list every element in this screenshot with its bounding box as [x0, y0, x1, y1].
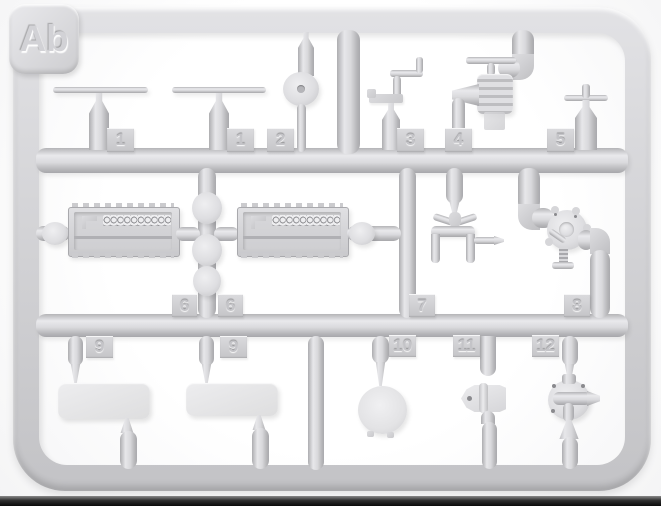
- part-12-bolt-2: [581, 384, 585, 388]
- part-7-post: [446, 168, 463, 204]
- tab-10-label: 10: [393, 336, 412, 356]
- part-9-left-top-post: [68, 336, 83, 366]
- tab-part-12: 12: [532, 335, 559, 357]
- stub-left-bulge: [42, 222, 68, 245]
- part-5-handle-pin: [582, 84, 590, 98]
- runner-vertical-bottom-center: [308, 336, 324, 470]
- part-6-left-groove: [74, 236, 172, 239]
- tab-part-3: 3: [397, 128, 424, 152]
- tab-5-label: 5: [556, 130, 565, 150]
- tab-part-7: 7: [409, 294, 435, 317]
- part-6-right-groove: [243, 236, 341, 239]
- tab-part-1-right: 1: [227, 128, 254, 152]
- runner-horizontal-lower: [36, 314, 628, 337]
- tab-part-11: 11: [453, 335, 480, 357]
- part-6-right-bottom-teeth: [241, 253, 343, 258]
- part-12-top-knob: [562, 374, 576, 384]
- part-10-disc: [358, 386, 407, 434]
- part-9-right-top-post: [199, 336, 214, 366]
- part-12-cross-tube: [553, 392, 591, 405]
- part-4-lower-flap: [484, 112, 505, 130]
- tab-9a-label: 9: [95, 337, 104, 357]
- part-3-foot-nub: [367, 89, 376, 98]
- part-6-right-bracket-leg: [251, 216, 255, 229]
- part-12-bolt-3: [551, 409, 555, 413]
- part-6-left-bracket-leg: [82, 216, 86, 229]
- sprue-corner-label: Ab: [9, 4, 79, 74]
- part-8-hole-left: [554, 213, 557, 216]
- tab-part-10: 10: [389, 335, 416, 357]
- tab-9b-label: 9: [229, 337, 238, 357]
- runner-bend8-vertical-bottom: [590, 250, 610, 318]
- tab-part-9-left: 9: [86, 336, 113, 358]
- tab-part-2: 2: [267, 128, 294, 152]
- tab-12-label: 12: [536, 336, 555, 356]
- runner-vertical-top-center: [337, 30, 360, 154]
- sprue-photo: Ab 1 1 2 3 4 5: [0, 0, 661, 506]
- part-6-left-cartridge-belt: [103, 215, 171, 226]
- part-8-hole-right: [574, 215, 577, 218]
- tab-6a-label: 6: [180, 296, 189, 316]
- tab-7-label: 7: [417, 296, 426, 316]
- part-8-lug-bottom-left: [545, 238, 553, 246]
- tab-part-6-left: 6: [172, 294, 197, 317]
- part-7-left-prong: [431, 234, 440, 263]
- part-12-handle: [563, 403, 574, 422]
- tab-11-label: 11: [458, 336, 476, 356]
- tab-part-6-right: 6: [218, 294, 243, 317]
- part-9-right-plate: [186, 383, 278, 416]
- part-12-bolt-1: [552, 384, 556, 388]
- sprue-id-text: Ab: [19, 18, 68, 60]
- part-10-nub-left: [367, 431, 374, 437]
- part-11-bottom-post: [482, 422, 497, 469]
- tab-2-label: 2: [276, 130, 285, 150]
- part-11-hole: [467, 396, 472, 401]
- tab-6b-label: 6: [226, 296, 235, 316]
- part-8-foot: [552, 262, 574, 269]
- part-11-center-ridge: [479, 383, 488, 413]
- part-2-hub-dot: [297, 85, 305, 93]
- runner-bulge-top: [192, 192, 222, 224]
- part-11-top-post: [480, 336, 496, 376]
- part-1-left-rod: [53, 87, 148, 93]
- tab-part-4: 4: [445, 128, 472, 152]
- tab-4-label: 4: [454, 130, 463, 150]
- part-9-left-plate: [58, 383, 150, 419]
- part-6-right-cartridge-belt: [272, 215, 340, 226]
- part-12-bottom-post: [562, 437, 578, 469]
- part-6-left-bottom-teeth: [72, 253, 174, 258]
- part-7-hub: [449, 212, 461, 227]
- part-9-left-bottom-post: [120, 431, 137, 469]
- photo-bottom-edge: [0, 496, 661, 506]
- stub-right-bulge: [349, 222, 375, 245]
- part-10-nub-right: [387, 432, 394, 438]
- part-10-post: [372, 336, 389, 364]
- tab-1-label: 1: [116, 130, 125, 150]
- tab-3-label: 3: [406, 130, 415, 150]
- part-12-top-post: [562, 336, 578, 366]
- part-3-grip: [416, 57, 423, 73]
- tab-part-9-right: 9: [220, 336, 247, 358]
- tab-part-5: 5: [547, 128, 574, 152]
- tab-part-8: 8: [564, 294, 590, 317]
- part-8-lug-top-right: [572, 207, 580, 215]
- part-4-valve-body: [477, 74, 513, 114]
- runner-bulge-bottom: [193, 266, 221, 296]
- tab-part-1-left: 1: [107, 128, 134, 152]
- tab-8-label: 8: [572, 296, 581, 316]
- part-2-stem: [297, 104, 306, 152]
- tab-1b-label: 1: [236, 130, 245, 150]
- part-1-right-rod: [172, 87, 266, 93]
- part-7-side-rod: [474, 237, 497, 244]
- part-9-right-bottom-post: [252, 428, 269, 469]
- runner-bulge-middle: [192, 234, 222, 266]
